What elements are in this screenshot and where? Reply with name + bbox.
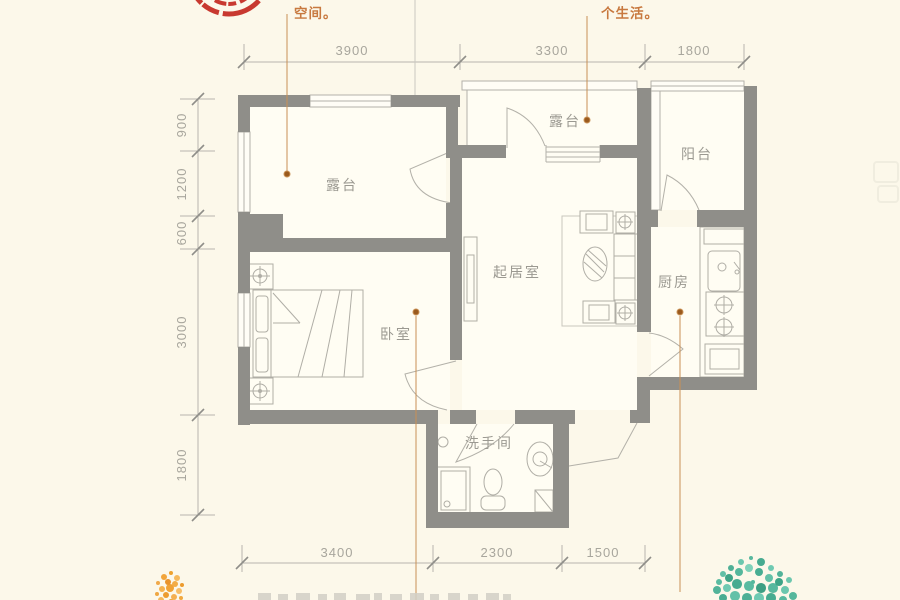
label-kitchen: 厨房: [658, 274, 690, 290]
dimension-left: 900 1200 600 3000 1800: [174, 93, 215, 521]
label-terrace-top: 露台: [549, 113, 581, 129]
nightstand-bottom: [247, 378, 273, 404]
label-living: 起居室: [493, 264, 541, 280]
dim-bottom-1500: 1500: [587, 545, 620, 560]
annotation-top-right: 个生活。: [600, 5, 659, 21]
dim-top-3900: 3900: [336, 43, 369, 58]
window-balcony-left: [651, 91, 660, 210]
label-bathroom: 洗手间: [465, 435, 513, 451]
railing-terrace-top: [462, 81, 637, 90]
dim-left-900: 900: [174, 113, 189, 138]
dimension-bottom: 3400 2300 1500: [236, 545, 651, 572]
label-bedroom: 卧室: [380, 326, 412, 342]
dim-top-1800: 1800: [678, 43, 711, 58]
clipped-text-marks: [258, 593, 511, 600]
dim-left-600: 600: [174, 221, 189, 246]
dim-left-1800: 1800: [174, 449, 189, 482]
dim-left-3000: 3000: [174, 316, 189, 349]
entry-boundary: [569, 423, 637, 466]
watermark: [874, 162, 898, 202]
dim-top-3300: 3300: [536, 43, 569, 58]
foliage-teal-decoration: [751, 580, 755, 584]
dim-left-1200: 1200: [174, 168, 189, 201]
floor-plan-page: 3900 3300 1800 900 1200 600 3000 1800: [0, 0, 900, 600]
nightstand-top: [247, 264, 273, 289]
bed: [253, 290, 363, 377]
stamp-icon: [189, 0, 269, 14]
label-balcony: 阳台: [681, 146, 713, 162]
floor-plan-svg: 3900 3300 1800 900 1200 600 3000 1800: [0, 0, 900, 600]
foliage-orange-decoration: [168, 587, 172, 591]
dim-bottom-3400: 3400: [321, 545, 354, 560]
annotation-top-left: 空间。: [294, 5, 338, 21]
annotations: 空间。 个生活。: [294, 5, 659, 21]
label-terrace-left: 露台: [326, 177, 358, 193]
dim-bottom-2300: 2300: [481, 545, 514, 560]
dimension-top: 3900 3300 1800: [238, 43, 750, 70]
